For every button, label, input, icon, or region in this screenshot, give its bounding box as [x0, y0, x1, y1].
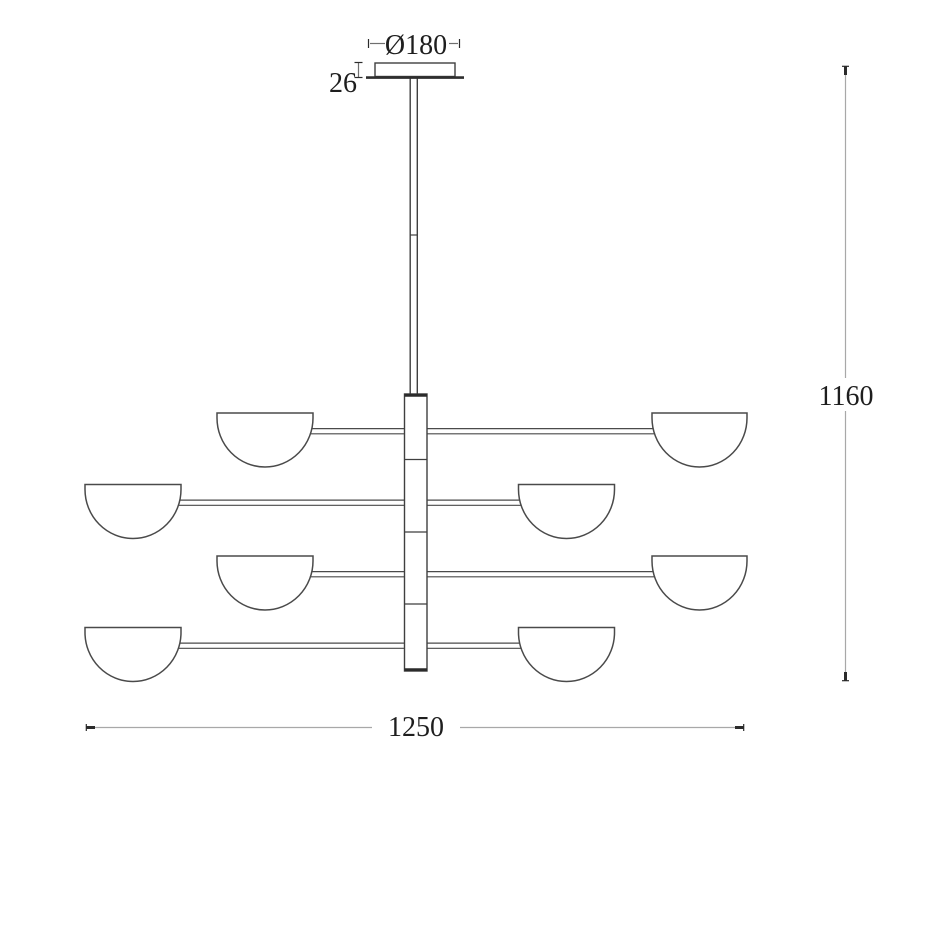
- shade-row3-right: [652, 556, 747, 610]
- overall-height-label: 1160: [819, 381, 874, 412]
- dimension-canopy-diameter: Ø180: [369, 30, 460, 61]
- shade-row4-right: [519, 628, 615, 682]
- chandelier-technical-drawing: Ø180 26 1160 1250: [0, 0, 937, 934]
- shade-row3-left: [217, 556, 313, 610]
- shade-row1-left: [217, 413, 313, 467]
- technical-drawing-page: Ø180 26 1160 1250: [0, 0, 937, 934]
- arm-row-2: [132, 500, 567, 505]
- central-stem: [405, 394, 428, 671]
- shade-row1-right: [652, 413, 747, 467]
- suspension-rod: [410, 78, 419, 398]
- shade-row4-left: [85, 628, 181, 682]
- canopy-height-label: 26: [329, 68, 357, 99]
- dimension-canopy-height: 26: [329, 63, 363, 100]
- shade-row2-right: [519, 485, 615, 539]
- arm-row-3: [264, 572, 700, 577]
- dimension-overall-height: 1160: [819, 66, 874, 681]
- arm-row-4: [132, 643, 567, 648]
- shade-row2-left: [85, 485, 181, 539]
- overall-width-label: 1250: [388, 712, 444, 743]
- dimension-overall-width: 1250: [86, 712, 744, 743]
- arm-row-1: [264, 429, 700, 434]
- ceiling-canopy: [366, 63, 464, 78]
- canopy-diameter-label: Ø180: [385, 30, 447, 61]
